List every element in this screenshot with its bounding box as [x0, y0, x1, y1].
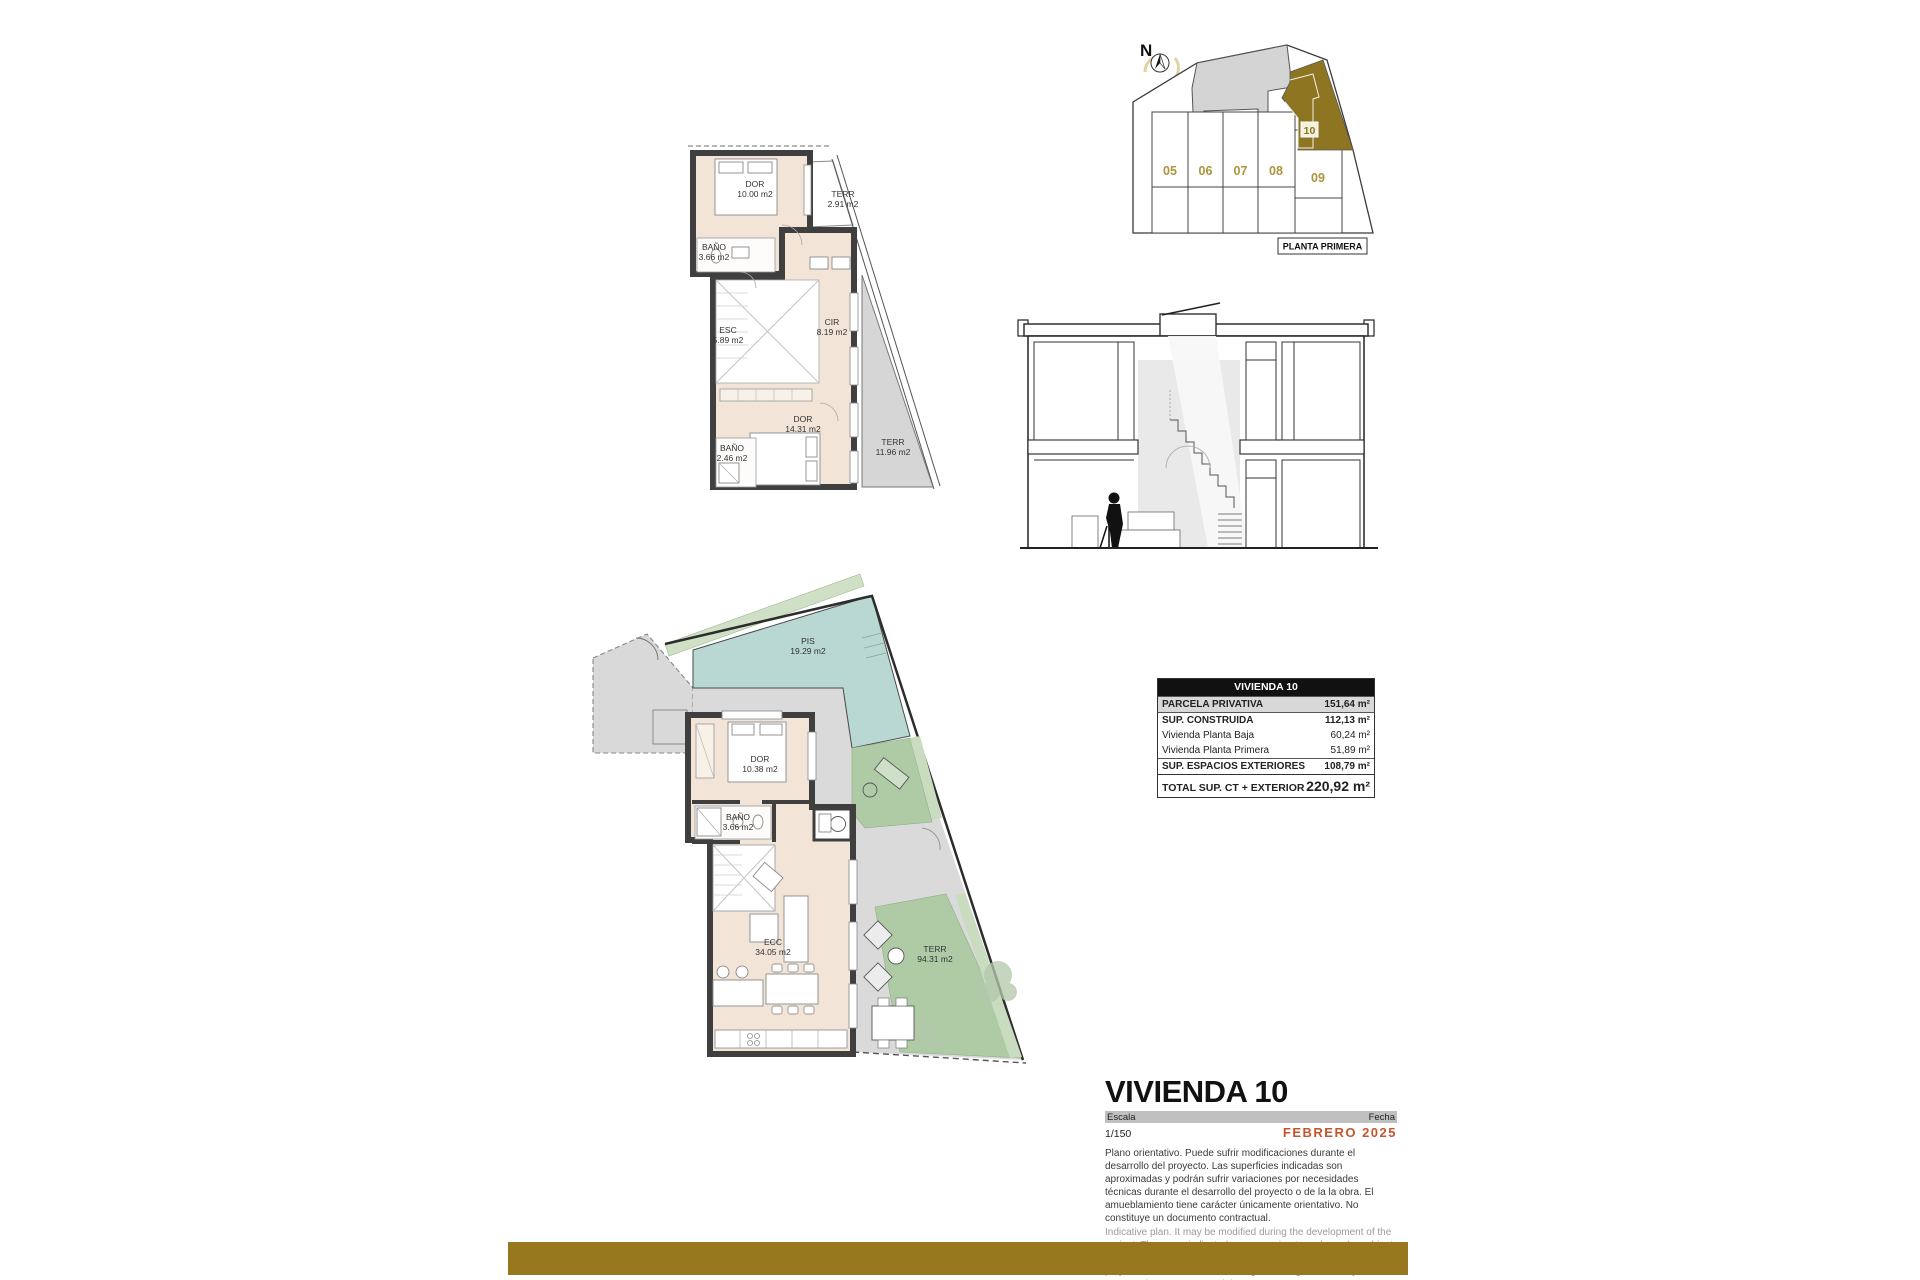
table-row-planta-primera: Vivienda Planta Primera 51,89 m²: [1158, 743, 1374, 758]
pillow: [760, 724, 782, 735]
surface-areas-table: VIVIENDA 10 PARCELA PRIVATIVA 151,64 m² …: [1157, 678, 1375, 798]
table-row-planta-baja: Vivienda Planta Baja 60,24 m²: [1158, 728, 1374, 743]
wardrobe: [720, 389, 812, 401]
desk: [810, 257, 828, 269]
sink-icon: [732, 247, 749, 258]
mid-slab-right: [1240, 440, 1364, 454]
pillow: [806, 461, 817, 481]
kitchen-island: [713, 980, 763, 1006]
skylight: [1160, 314, 1216, 336]
svg-text:05: 05: [1163, 164, 1177, 178]
footer-gold-bar: [508, 1242, 1408, 1275]
dining-table: [766, 974, 818, 1004]
plan-caption: PLANTA PRIMERA: [1283, 242, 1363, 252]
room-label-bano: BAÑO3.66 m2: [723, 812, 754, 832]
svg-text:09: 09: [1311, 171, 1325, 185]
footer-bar-rect: [508, 1242, 1408, 1275]
north-compass-icon: N: [1140, 41, 1178, 80]
mid-slab-left: [1028, 440, 1138, 454]
scale-value: 1/150: [1105, 1128, 1131, 1140]
room-label-bano2: BAÑO2.46 m2: [717, 443, 748, 463]
kitchen-counter: [715, 1030, 847, 1048]
table-row-construida: SUP. CONSTRUIDA 112,13 m²: [1158, 712, 1374, 728]
site-location-plan: N 10 05 06 07 08 09: [1120, 30, 1405, 275]
scale-date-bar: Escala Fecha: [1105, 1111, 1397, 1123]
unit-10-label: 10: [1304, 125, 1316, 137]
skylight-open-lid: [1162, 303, 1220, 315]
date-value: FEBRERO 2025: [1283, 1125, 1397, 1140]
desk: [832, 257, 850, 269]
date-label: Fecha: [1369, 1112, 1395, 1123]
svg-text:07: 07: [1234, 164, 1248, 178]
toilet-icon: [753, 815, 763, 829]
room-label-bano1: BAÑO3.66 m2: [699, 242, 730, 262]
sheet-title: VIVIENDA 10: [1105, 1076, 1397, 1107]
room-label-terr1: TERR2.91 m2: [828, 189, 859, 209]
first-floor-plan: DOR10.00 m2 TERR2.91 m2 BAÑO3.66 m2 ESC5…: [670, 135, 960, 510]
svg-text:N: N: [1140, 41, 1152, 60]
disclaimer-spanish: Plano orientativo. Puede sufrir modifica…: [1105, 1147, 1397, 1225]
utility-cabinet: [819, 814, 831, 832]
table-row-exteriores: SUP. ESPACIOS EXTERIORES 108,79 m²: [1158, 758, 1374, 774]
pillow: [806, 437, 817, 457]
scale-date-values: 1/150 FEBRERO 2025: [1105, 1125, 1397, 1140]
plan-sheet: DOR10.00 m2 TERR2.91 m2 BAÑO3.66 m2 ESC5…: [0, 0, 1920, 1280]
section-drawing: [1010, 300, 1390, 560]
scale-label: Escala: [1107, 1112, 1136, 1123]
pillow: [748, 162, 772, 173]
table-header: VIVIENDA 10: [1158, 679, 1374, 696]
washing-machine-icon: [831, 817, 846, 832]
ground-floor-plan: PIS19.29 m2 DOR10.38 m2 BAÑO3.66 m2 ECC3…: [570, 560, 1090, 1090]
pillow: [732, 724, 754, 735]
svg-text:08: 08: [1269, 164, 1283, 178]
svg-text:06: 06: [1199, 164, 1213, 178]
pillow: [719, 162, 743, 173]
table-row-parcela: PARCELA PRIVATIVA 151,64 m²: [1158, 696, 1374, 712]
table-row-total: TOTAL SUP. CT + EXTERIOR 220,92 m²: [1158, 774, 1374, 797]
